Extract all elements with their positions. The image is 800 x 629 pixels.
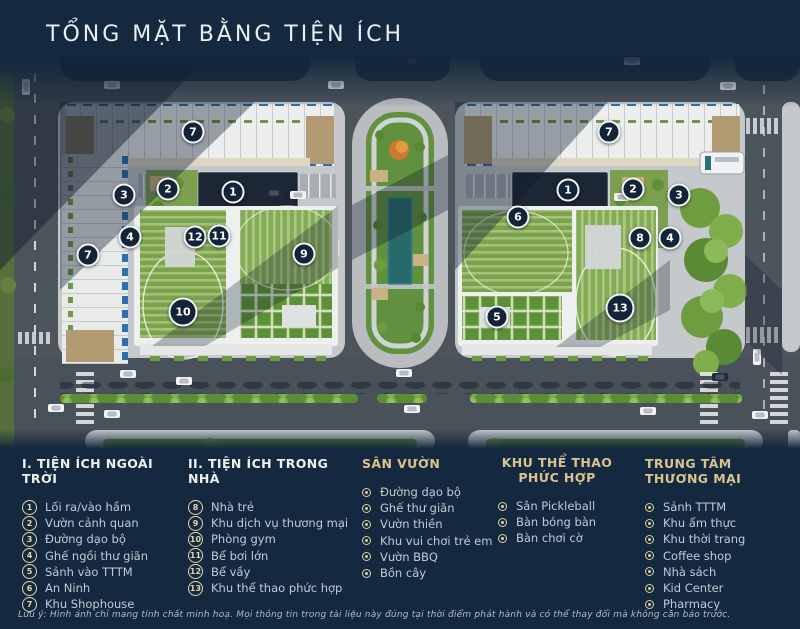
legend-item-label: Coffee shop [663, 549, 731, 563]
legend: I. TIỆN ÍCH NGOÀI TRỜI1Lối ra/vào hầm2Vư… [0, 0, 800, 629]
legend-item-label: Khu thời trang [663, 532, 745, 546]
legend-column-title: SÂN VƯỜN [362, 456, 497, 471]
legend-number-badge: 1 [22, 500, 37, 515]
legend-bullet-icon [645, 503, 654, 512]
legend-bullet-icon [362, 488, 371, 497]
legend-item: 10Phòng gym [188, 531, 353, 547]
legend-bullet-icon [362, 569, 371, 578]
legend-item: Bàn chơi cờ [498, 530, 616, 546]
legend-item-label: Kid Center [663, 581, 723, 595]
legend-item: 2Vườn cảnh quan [22, 515, 172, 531]
legend-item: 3Đường dạo bộ [22, 531, 172, 547]
legend-number-badge: 6 [22, 581, 37, 596]
legend-item-label: Ghế thư giãn [380, 501, 455, 515]
legend-number-badge: 10 [188, 532, 203, 547]
legend-number-badge: 3 [22, 532, 37, 547]
legend-bullet-icon [498, 518, 507, 527]
legend-item-label: Đường dạo bộ [45, 532, 126, 546]
legend-item: 1Lối ra/vào hầm [22, 499, 172, 515]
legend-item: 4Ghế ngồi thư giãn [22, 548, 172, 564]
legend-item-label: Khu ẩm thực [663, 516, 736, 530]
legend-column-title: TRUNG TÂM THƯƠNG MẠI [645, 456, 797, 486]
legend-number-badge: 4 [22, 548, 37, 563]
legend-bullet-icon [645, 584, 654, 593]
legend-column-3: SÂN VƯỜNĐường dạo bộGhế thư giãnVườn thi… [362, 456, 497, 581]
legend-number-badge: 9 [188, 516, 203, 531]
legend-item: Đường dạo bộ [362, 484, 497, 500]
legend-item-label: An Ninh [45, 581, 90, 595]
legend-column-1: I. TIỆN ÍCH NGOÀI TRỜI1Lối ra/vào hầm2Vư… [22, 456, 172, 612]
legend-item: Khu ẩm thực [645, 515, 797, 531]
legend-item: Nhà sách [645, 564, 797, 580]
legend-item: Sảnh TTTM [645, 499, 797, 515]
legend-column-title: II. TIỆN ÍCH TRONG NHÀ [188, 456, 353, 486]
footnote: Lưu ý: Hình ảnh chỉ mang tính chất minh … [18, 610, 730, 620]
legend-column-5: TRUNG TÂM THƯƠNG MẠISảnh TTTMKhu ẩm thực… [645, 456, 797, 612]
legend-item-label: Ghế ngồi thư giãn [45, 549, 148, 563]
legend-item-label: Nhà trẻ [211, 500, 254, 514]
legend-item: Sân Pickleball [498, 498, 616, 514]
legend-item-label: Bàn chơi cờ [516, 531, 583, 545]
legend-item-label: Khu vui chơi trẻ em [380, 534, 492, 548]
legend-item: Khu vui chơi trẻ em [362, 533, 497, 549]
legend-column-4: KHU THỂ THAO PHỨC HỢPSân PickleballBàn b… [498, 455, 616, 547]
legend-item-label: Bể vầy [211, 565, 250, 579]
legend-number-badge: 5 [22, 564, 37, 579]
legend-item-label: Bồn cây [380, 566, 426, 580]
legend-bullet-icon [362, 504, 371, 513]
legend-item: 5Sảnh vào TTTM [22, 564, 172, 580]
legend-bullet-icon [645, 519, 654, 528]
legend-item: Kid Center [645, 580, 797, 596]
legend-item-label: Lối ra/vào hầm [45, 500, 131, 514]
legend-number-badge: 8 [188, 500, 203, 515]
legend-bullet-icon [645, 600, 654, 609]
legend-item: 6An Ninh [22, 580, 172, 596]
legend-item-label: Bàn bóng bàn [516, 515, 596, 529]
legend-bullet-icon [645, 551, 654, 560]
legend-column-2: II. TIỆN ÍCH TRONG NHÀ8Nhà trẻ9Khu dịch … [188, 456, 353, 596]
legend-bullet-icon [498, 502, 507, 511]
legend-item: 8Nhà trẻ [188, 499, 353, 515]
legend-bullet-icon [362, 520, 371, 529]
legend-bullet-icon [645, 567, 654, 576]
legend-item: Khu thời trang [645, 531, 797, 547]
legend-number-badge: 11 [188, 548, 203, 563]
legend-item: Vườn thiền [362, 516, 497, 532]
legend-item-label: Đường dạo bộ [380, 485, 461, 499]
legend-bullet-icon [362, 536, 371, 545]
legend-item: Vườn BBQ [362, 549, 497, 565]
legend-bullet-icon [362, 552, 371, 561]
legend-item-label: Vườn thiền [380, 517, 443, 531]
legend-item-label: Phòng gym [211, 532, 276, 546]
legend-column-title: I. TIỆN ÍCH NGOÀI TRỜI [22, 456, 172, 486]
legend-item-label: Sảnh vào TTTM [45, 565, 133, 579]
legend-item-label: Khu thể thao phức hợp [211, 581, 342, 595]
legend-bullet-icon [645, 535, 654, 544]
legend-number-badge: 2 [22, 516, 37, 531]
legend-column-title: KHU THỂ THAO PHỨC HỢP [498, 455, 616, 485]
legend-item-label: Sân Pickleball [516, 499, 595, 513]
legend-bullet-icon [498, 534, 507, 543]
legend-item: 9Khu dịch vụ thương mại [188, 515, 353, 531]
legend-item-label: Bể bơi lớn [211, 549, 268, 563]
legend-item: 13Khu thể thao phức hợp [188, 580, 353, 596]
legend-item: 12Bể vầy [188, 564, 353, 580]
legend-item: Bồn cây [362, 565, 497, 581]
legend-item-label: Sảnh TTTM [663, 500, 726, 514]
legend-item: 11Bể bơi lớn [188, 548, 353, 564]
legend-number-badge: 13 [188, 581, 203, 596]
legend-item-label: Vườn BBQ [380, 550, 438, 564]
legend-item: Bàn bóng bàn [498, 514, 616, 530]
legend-number-badge: 12 [188, 564, 203, 579]
legend-item-label: Khu dịch vụ thương mại [211, 516, 348, 530]
legend-item-label: Vườn cảnh quan [45, 516, 139, 530]
poster: TỔNG MẶT BẰNG TIỆN ÍCH [0, 0, 800, 629]
legend-item: Coffee shop [645, 548, 797, 564]
legend-item: Ghế thư giãn [362, 500, 497, 516]
legend-item-label: Nhà sách [663, 565, 716, 579]
